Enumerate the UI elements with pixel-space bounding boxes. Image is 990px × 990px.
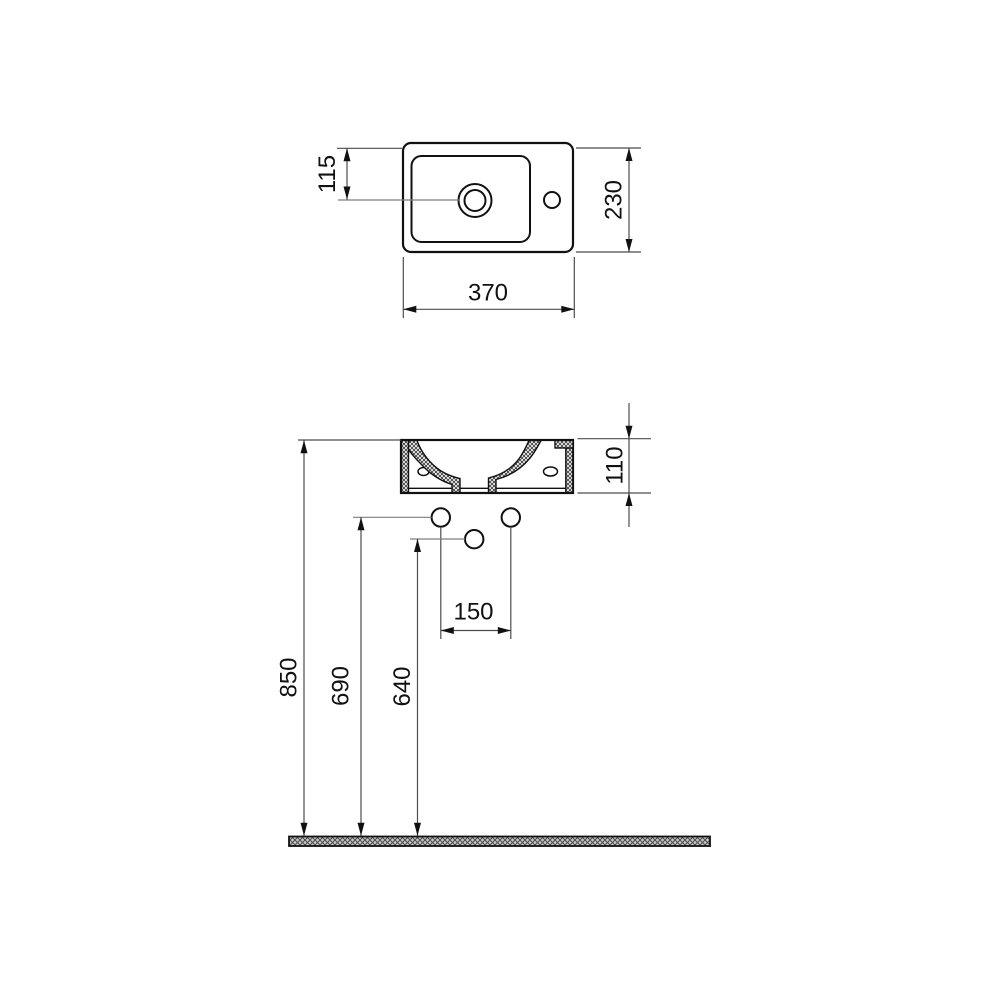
dim-label-110: 110 <box>602 446 629 484</box>
dim-label-150: 150 <box>453 599 493 626</box>
technical-drawing-page: 115 230 370 110 <box>0 0 990 990</box>
section-view <box>401 440 573 493</box>
floor-hatch-bar <box>289 837 710 847</box>
dim-label-230: 230 <box>601 180 628 220</box>
washbasin-dimension-drawing: 115 230 370 110 <box>0 0 990 990</box>
fixing-hole-left <box>432 508 450 526</box>
left-wall-section <box>402 441 409 493</box>
fixing-hole-right <box>502 508 520 526</box>
floor <box>289 837 710 847</box>
hidden-fixing-hole-right <box>544 467 558 476</box>
dim-label-370: 370 <box>468 280 508 307</box>
dim-label-115: 115 <box>314 155 341 193</box>
dim-label-690: 690 <box>328 666 355 706</box>
rim-corner-section-block <box>555 441 573 449</box>
overflow-hole-circle <box>544 192 560 208</box>
drain-hole-center <box>465 530 483 548</box>
dim-label-850: 850 <box>276 657 303 697</box>
tap-hole-inner-circle <box>465 190 486 211</box>
dim-label-640: 640 <box>389 666 416 706</box>
top-view <box>403 143 573 252</box>
